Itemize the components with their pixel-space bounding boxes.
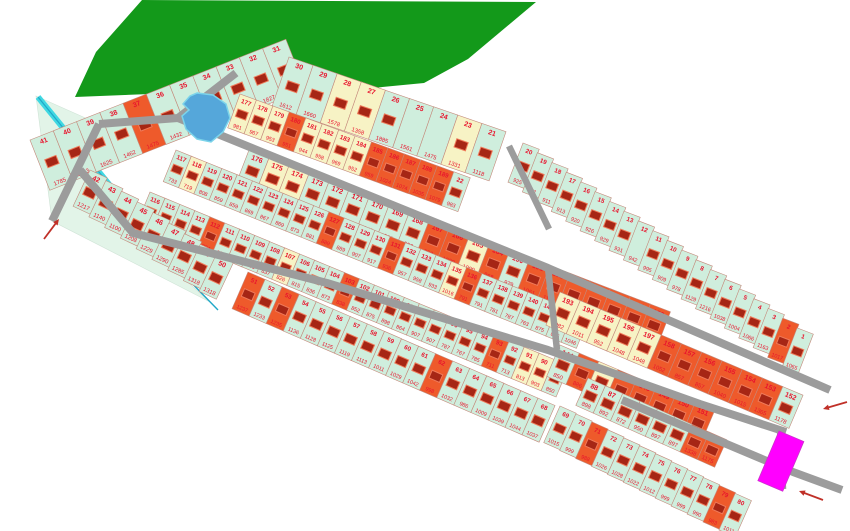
subdivision-map: 4117854019433916253814623714753614323514… <box>0 0 850 531</box>
access-arrow-0 <box>44 219 59 239</box>
access-arrow-1 <box>823 402 847 410</box>
map-canvas: 4117854019433916253814623714753614323514… <box>0 0 850 531</box>
access-arrow-2 <box>799 491 823 501</box>
